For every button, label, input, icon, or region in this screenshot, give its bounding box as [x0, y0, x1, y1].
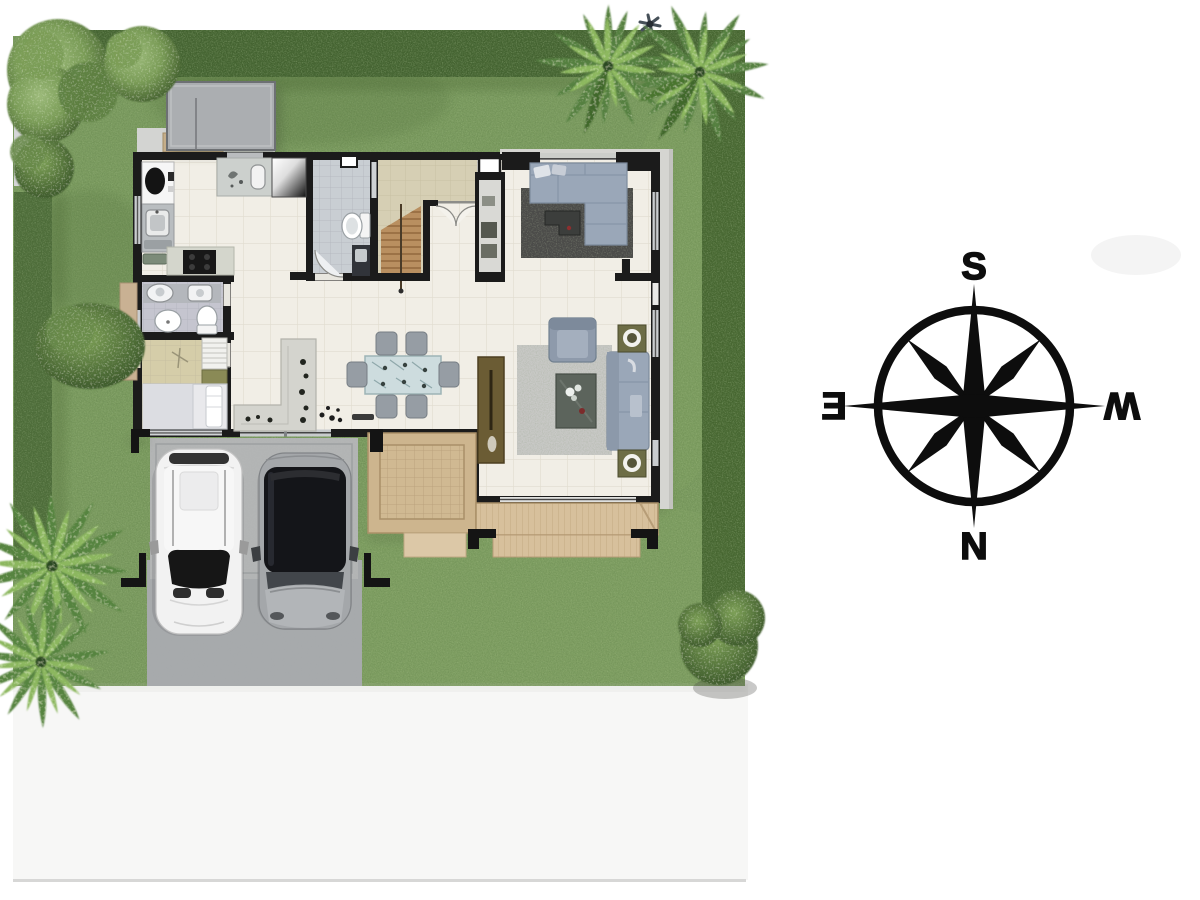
svg-text:N: N	[960, 526, 987, 568]
svg-text:S: S	[961, 246, 986, 288]
svg-text:E: E	[821, 386, 846, 428]
svg-text:W: W	[1104, 384, 1140, 426]
